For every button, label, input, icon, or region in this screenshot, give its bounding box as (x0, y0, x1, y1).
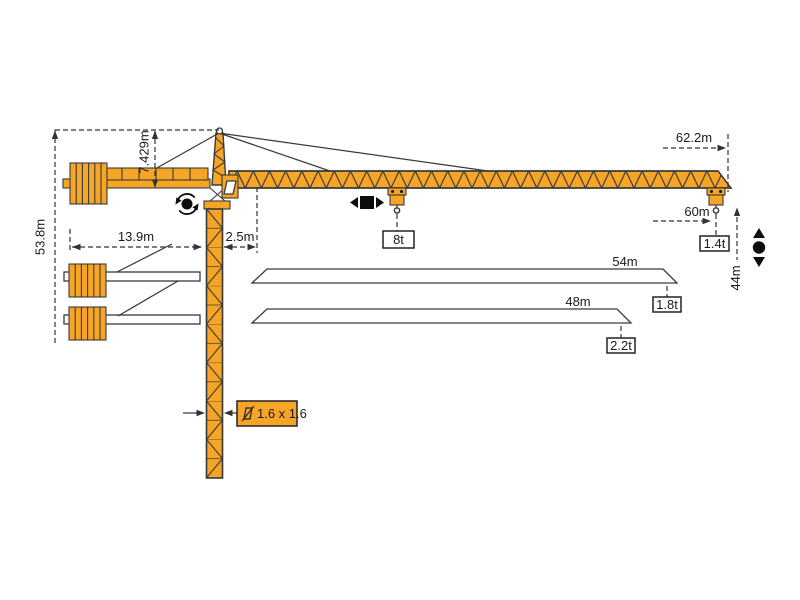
arrow-left (224, 410, 233, 416)
tip-load-label: 1.4t (704, 236, 726, 251)
trolley-mid (388, 188, 406, 213)
max-radius-label: 62.2m (676, 130, 712, 145)
counter-jib-variant-2 (64, 307, 200, 340)
arrow-right (718, 145, 727, 151)
jib-lattice (229, 171, 731, 188)
slewing-platform (204, 201, 230, 209)
trolley-wheel (710, 190, 713, 193)
tower-head-label: 7.429m (137, 130, 152, 173)
arrow-up (152, 131, 158, 140)
arrow-up (52, 131, 58, 140)
arrow-right (197, 410, 206, 416)
slew-dot (182, 199, 193, 210)
trolley-wheel (391, 190, 394, 193)
jib-54m-label: 54m (612, 254, 637, 269)
hook-block (709, 195, 723, 205)
arrow-right (194, 244, 203, 250)
crane-drawing: 54m 1.8t 48m 2.2t 53.8m 7.429m 13.9m (0, 0, 800, 600)
load-max: 8t (383, 214, 414, 248)
tip-radius-label: 60m (684, 204, 709, 219)
dim-under-hook: 44m (728, 208, 743, 297)
dim-tip-radius: 60m (653, 204, 711, 224)
mast-section-label: 1.6 x 1.6 (257, 406, 307, 421)
arrow-down (753, 257, 765, 267)
trolley-wheel (400, 190, 403, 193)
trolley-travel-icon (350, 196, 384, 209)
trolley-square (360, 196, 374, 209)
main-jib (229, 171, 731, 188)
mast-lattice (207, 209, 223, 478)
trolley-frame (707, 188, 725, 195)
mast-section-callout: 1.6 x 1.6 (183, 401, 307, 426)
tip-load-54m-label: 1.8t (656, 297, 678, 312)
arrow-up (734, 208, 740, 217)
trolley-wheel (719, 190, 722, 193)
under-hook-label: 44m (728, 265, 743, 290)
total-height-label: 53.8m (33, 219, 48, 255)
hook (394, 208, 399, 213)
tip-load-48m-label: 2.2t (610, 338, 632, 353)
counter-jib-radius-label: 13.9m (118, 229, 154, 244)
jib-48m-label: 48m (565, 294, 590, 309)
max-load-label: 8t (393, 232, 404, 247)
jib-48m-outline (252, 309, 631, 323)
hoist-dot (753, 241, 765, 253)
slewing-rotation-icon (175, 194, 198, 214)
arrow-right (248, 244, 257, 250)
jib-profile-54m: 54m 1.8t (252, 254, 681, 312)
trolley-tip (707, 188, 725, 213)
hoist-up-down-icon (753, 228, 765, 267)
dim-counter-jib-radius: 13.9m (70, 229, 202, 253)
jib-profile-48m: 48m 2.2t (252, 294, 635, 353)
counter-jib-variant-1 (64, 264, 200, 297)
tower-crane-spec-diagram: 54m 1.8t 48m 2.2t 53.8m 7.429m 13.9m (0, 0, 800, 600)
hook-block (390, 195, 404, 205)
trolley-frame (388, 188, 406, 195)
hook (713, 208, 718, 213)
operator-cab (222, 175, 238, 198)
tie-bars (155, 133, 488, 171)
jib-root-offset-label: 2.5m (226, 229, 255, 244)
tie-bar-lines (155, 133, 488, 171)
arrow-up (753, 228, 765, 238)
arrow-left (350, 197, 358, 208)
arrow-left (72, 244, 81, 250)
jib-54m-outline (252, 269, 677, 283)
arrow-left (224, 244, 233, 250)
apex-pin (217, 128, 223, 134)
arrow-right (376, 197, 384, 208)
